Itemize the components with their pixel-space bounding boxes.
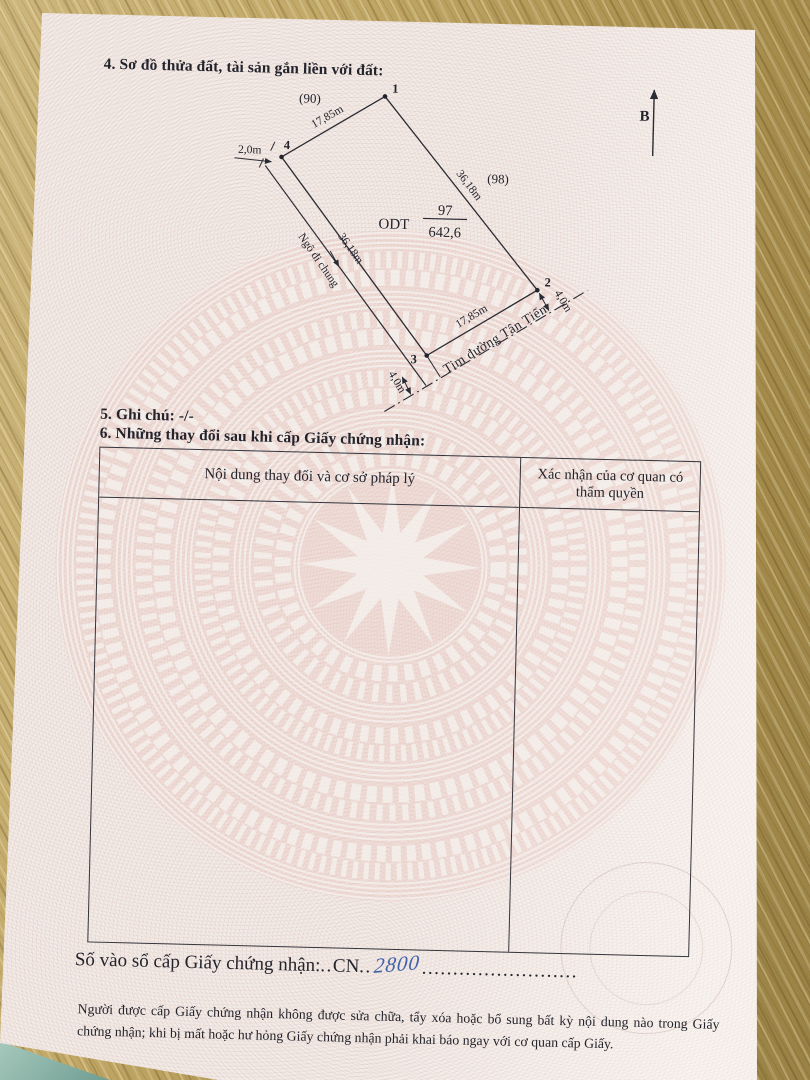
edge-bottom-length: 17,85m <box>454 303 490 331</box>
cadastral-diagram: 1 2 3 4 (90) (98) 17,85m 36,18m 17,85m 3… <box>216 70 685 441</box>
certificate-page: 4. Sơ đồ thửa đất, tài sản gắn liền với … <box>0 0 810 1080</box>
vertex-2-label: 2 <box>544 275 551 289</box>
registry-dots: .. <box>320 955 333 976</box>
edge-right-length: 36,18m <box>454 168 485 203</box>
vertex-1-label: 1 <box>392 82 399 96</box>
page-content: 4. Sơ đồ thửa đất, tài sản gắn liền với … <box>13 12 756 1080</box>
road-offset-near-3: 4,0m <box>386 369 408 395</box>
north-label: B <box>639 109 649 125</box>
neighbor-plot-98: (98) <box>487 171 509 187</box>
north-arrow-icon <box>653 90 655 156</box>
registry-dots-after: ......................... <box>422 958 579 983</box>
vertex-3-label: 3 <box>410 352 417 366</box>
lane-width-label: 2,0m <box>238 144 262 157</box>
registry-number-handwritten: 2800 <box>373 950 421 979</box>
edge-left-length: 36,18m <box>335 231 365 266</box>
vertex-4-label: 4 <box>284 138 291 152</box>
road-name-label: Tim đường Tân Tiến <box>440 301 549 376</box>
registry-dots-mid: .. <box>359 956 372 977</box>
registry-code: CN <box>333 955 360 977</box>
registry-label: Số vào sổ cấp Giấy chứng nhận: <box>75 949 321 976</box>
table-body-content-cell <box>88 498 520 952</box>
land-use-code: ODT <box>378 216 409 233</box>
neighbor-plot-90: (90) <box>299 90 321 106</box>
plot-number: 97 <box>438 203 453 219</box>
section5-line: 5. Ghi chú: -/- <box>100 406 194 426</box>
table-body-authority-cell <box>509 508 699 956</box>
table-header-authority-confirmation: Xác nhận của cơ quan có thẩm quyền <box>520 458 700 512</box>
road-offset-near-2: 4,0m <box>552 288 574 314</box>
changes-table: Nội dung thay đổi và cơ sở pháp lý Xác n… <box>87 447 701 958</box>
photo-canvas: 4. Sơ đồ thửa đất, tài sản gắn liền với … <box>0 0 810 1080</box>
plot-area: 642,6 <box>428 225 461 242</box>
edge-top-length: 17,85m <box>309 103 345 131</box>
